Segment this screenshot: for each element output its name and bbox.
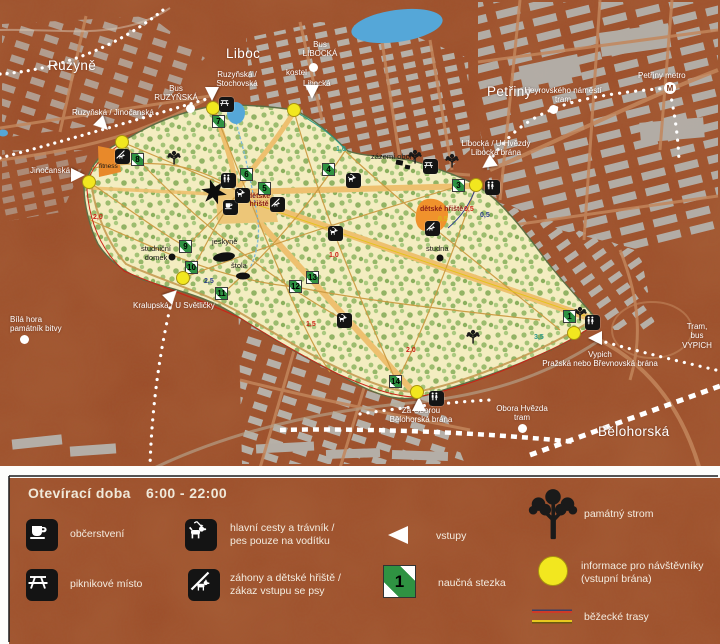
dog-on-leash-icon (337, 313, 352, 328)
stop-label-bus-libocka: Bus LIBOCKÁ (303, 40, 338, 59)
distance-marker: 2,0 (93, 214, 103, 221)
dog-on-leash-icon (328, 226, 343, 241)
metro-station-icon: M (664, 82, 676, 94)
info-point-icon (567, 326, 581, 340)
nature-trail-marker: 4 (322, 163, 335, 176)
nature-trail-marker: 3 (452, 179, 465, 192)
refreshments-icon (26, 519, 58, 551)
legend-label-zahony: záhony a dětské hřiště / zákaz vstupu se… (230, 572, 341, 598)
entrance-label-jinocanska: Jinočanská (30, 166, 70, 175)
nature-trail-marker: 5 (258, 182, 271, 195)
legend-label-hlavni-cesty: hlavní cesty a trávník / pes pouze na vo… (230, 522, 334, 548)
distance-marker: 1,0 (329, 252, 339, 259)
wc-icon (221, 173, 236, 188)
info-point-icon (176, 271, 190, 285)
entrance-triangle-icon (305, 85, 319, 99)
legend-label-piknikove-misto: piknikové místo (70, 578, 142, 591)
legend-label-naucna-stezka: naučná stezka (438, 577, 506, 590)
distance-marker: 1,5 (306, 321, 316, 328)
poi-label-studnicni-domek: studniční domek (141, 245, 171, 263)
distance-marker: 0,5 (464, 206, 474, 213)
map-canvas (0, 0, 720, 644)
stop-label-heyrovskeho: Heyrovského náměstí tram (524, 86, 601, 105)
memorial-tree-icon (524, 483, 582, 547)
studna-dot (437, 255, 444, 262)
park-map-screenshot: Ruzyně Liboc Petřiny Bělohorská Bus LIBO… (0, 0, 720, 644)
picnic-site-icon (26, 569, 58, 601)
entrance-triangle-icon (205, 87, 219, 101)
district-label-ruzyne: Ruzyně (48, 58, 96, 74)
nature-trail-marker: 12 (289, 280, 302, 293)
no-dogs-icon (188, 569, 220, 601)
legend-label-obcerstveni: občerstvení (70, 528, 124, 541)
entrance-triangle-icon (588, 331, 602, 345)
nature-trail-marker: 1 (563, 310, 576, 323)
info-point-icon (206, 101, 220, 115)
entrance-label-libocka-u-hvezdy: Libocká / U Hvězdy Libocká brána (462, 139, 531, 158)
entrance-label-stochovska: Ruzyňská / Stochovská (216, 70, 257, 89)
poi-label-fitness: fitness (99, 163, 118, 171)
nature-trail-marker: 14 (389, 375, 402, 388)
stop-label-petriny-metro: Petřiny metro (638, 71, 686, 80)
district-label-belohorska: Bělohorská (598, 424, 670, 440)
stop-label-tram-bus-vypich: Tram, bus VYPICH (682, 322, 712, 350)
nature-trail-marker: 11 (215, 287, 228, 300)
legend-label-vstupy: vstupy (436, 530, 466, 543)
stola-blob (236, 273, 250, 280)
poi-label-stola: štola (231, 262, 247, 271)
poi-label-detske-hriste-west: dětské hřiště (248, 193, 270, 210)
wc-icon (429, 391, 444, 406)
memorial-point-icon (20, 335, 29, 344)
picnic-site-icon (219, 97, 234, 112)
distance-marker: 1,0 (336, 146, 346, 153)
no-dogs-icon (270, 197, 285, 212)
distance-marker: 2,5 (204, 278, 214, 285)
wc-icon (585, 315, 600, 330)
entrance-label-jinocanska-ruzynska: Ruzyňská / Jinočanská (72, 108, 154, 117)
nature-trail-marker: 7 (212, 115, 225, 128)
no-dogs-icon (425, 221, 440, 236)
bus-stop-icon (309, 63, 318, 72)
poi-label-kostel: kostel (286, 68, 307, 77)
legend-title: Otevírací doba (28, 485, 131, 501)
no-dogs-icon (115, 149, 130, 164)
dog-on-leash-icon (346, 173, 361, 188)
running-route-yellow-swatch (532, 620, 572, 622)
picnic-site-icon (423, 159, 438, 174)
stop-label-obora-hvezda-tram: Obora Hvězda tram (496, 404, 548, 423)
info-point-icon (410, 385, 424, 399)
entrance-triangle-icon (412, 397, 426, 411)
tram-stop-icon (518, 424, 527, 433)
running-route-red-swatch (532, 611, 572, 613)
poi-label-zazemi-obory: zázemí obory (371, 153, 416, 162)
nature-trail-marker: 6 (240, 168, 253, 181)
entrance-triangle-icon (388, 526, 408, 544)
nature-trail-marker: 8 (131, 153, 144, 166)
nature-trail-icon: 1 (383, 565, 416, 598)
nature-trail-marker: 13 (306, 271, 319, 284)
poi-label-bila-hora: Bílá hora památník bitvy (10, 315, 62, 334)
distance-marker: 2,0 (406, 347, 416, 354)
stop-label-bus-ruzynska: Bus RUZYŇSKÁ (154, 84, 198, 103)
poi-label-jeskyne: jeskyně (212, 238, 237, 247)
legend-label-bezecke-trasy: běžecké trasy (584, 611, 649, 624)
district-label-liboc: Liboc (226, 46, 260, 62)
distance-marker: 3,5 (534, 334, 544, 341)
poi-label-studna: studna (426, 245, 449, 254)
legend-label-informace: informace pro návštěvníky (vstupní brána… (581, 560, 704, 586)
dog-on-leash-icon (235, 188, 250, 203)
info-point-icon (82, 175, 96, 189)
info-point-icon (115, 135, 129, 149)
distance-marker: 0,5 (480, 212, 490, 219)
tram-stop-icon (549, 105, 558, 114)
info-point-icon (538, 556, 568, 586)
wc-icon (485, 180, 500, 195)
legend-hours: 6:00 - 22:00 (146, 485, 227, 501)
nature-trail-marker: 9 (179, 240, 192, 253)
legend-label-pamatny-strom: památný strom (584, 508, 653, 521)
legend-left-strip (0, 466, 9, 644)
info-point-icon (287, 103, 301, 117)
info-point-icon (469, 178, 483, 192)
poi-label-detske-hriste-east: dětské hřiště (420, 206, 463, 214)
dog-on-leash-icon (185, 519, 217, 551)
bus-stop-icon (186, 104, 195, 113)
entrance-label-vypich: Vypich Pražská nebo Břevnovská brána (542, 350, 658, 369)
